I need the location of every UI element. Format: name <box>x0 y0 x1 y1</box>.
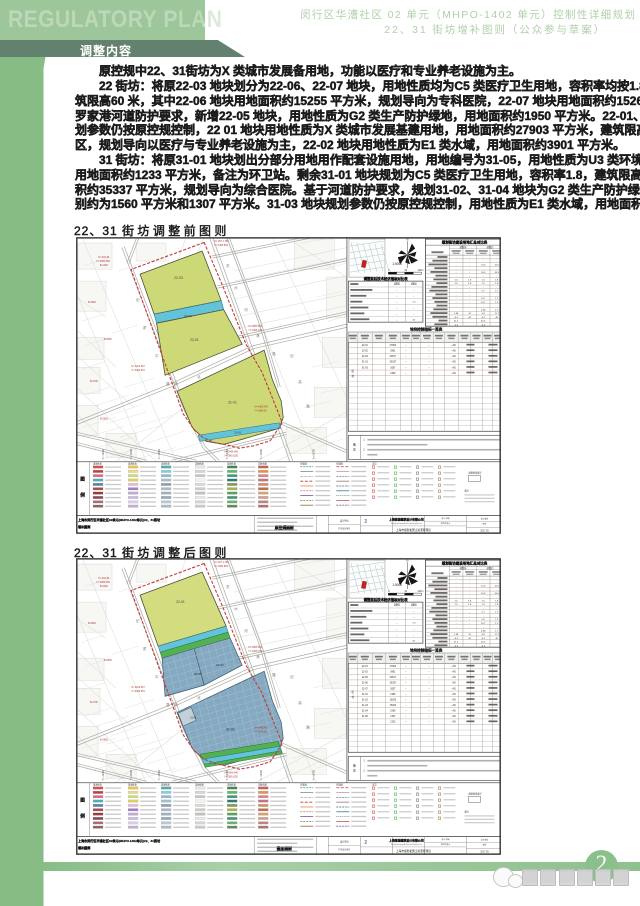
svg-text:X=-3463.584: X=-3463.584 <box>248 325 262 328</box>
svg-text:Y=-16000: Y=-16000 <box>312 769 315 780</box>
svg-text:--: -- <box>428 699 430 701</box>
svg-text:--: -- <box>405 367 407 369</box>
svg-text:--: -- <box>413 313 415 315</box>
svg-text:22-07: 22-07 <box>216 663 224 667</box>
svg-text:1233: 1233 <box>390 721 396 723</box>
svg-text:上海市规划和国土资源管理局: 上海市规划和国土资源管理局 <box>396 849 431 853</box>
svg-text:22-03: 22-03 <box>174 276 183 280</box>
svg-text:Y=-16000: Y=-16000 <box>102 769 105 780</box>
svg-text:22-02: 22-02 <box>362 350 369 352</box>
svg-text:--/60: --/60 <box>451 666 456 668</box>
svg-text:路: 路 <box>166 702 170 707</box>
svg-text:闵: 闵 <box>174 702 178 707</box>
svg-text:Y=-16000: Y=-16000 <box>312 448 315 459</box>
svg-text:--: -- <box>405 666 407 668</box>
svg-text:1307: 1307 <box>390 716 396 718</box>
svg-text:30517: 30517 <box>390 677 397 679</box>
svg-text:31-01: 31-01 <box>362 694 369 696</box>
svg-text:--: -- <box>396 307 398 309</box>
svg-text:上海规源建筑设计有限公司: 上海规源建筑设计有限公司 <box>389 516 424 521</box>
svg-text:--: -- <box>428 677 430 679</box>
svg-text:Y=-16000: Y=-16000 <box>158 448 161 459</box>
svg-text:22-03: 22-03 <box>362 356 369 358</box>
svg-text:35337: 35337 <box>390 361 397 363</box>
svg-text:--: -- <box>428 356 430 358</box>
svg-text:调整前后技术经济指标对比表: 调整前后技术经济指标对比表 <box>364 597 409 602</box>
svg-text:规划街坊建设用地汇总对比表: 规划街坊建设用地汇总对比表 <box>441 560 488 565</box>
svg-text:备: 备 <box>353 762 356 767</box>
svg-text:--/60: --/60 <box>451 372 456 374</box>
svg-text:中: 中 <box>155 674 159 679</box>
svg-text:1560: 1560 <box>390 710 396 712</box>
svg-text:X=-257.1.756: X=-257.1.756 <box>214 240 229 243</box>
svg-text:--: -- <box>405 671 407 673</box>
svg-text:--: -- <box>428 705 430 707</box>
svg-text:22-02: 22-02 <box>362 671 369 673</box>
svg-text:31-02: 31-02 <box>362 699 369 701</box>
svg-text:闵: 闵 <box>174 381 178 386</box>
svg-text:注: 注 <box>353 446 356 451</box>
svg-text:27903: 27903 <box>390 345 397 347</box>
svg-text:--: -- <box>428 345 430 347</box>
svg-text:--: -- <box>396 319 398 321</box>
svg-text:--: -- <box>405 710 407 712</box>
svg-text:--: -- <box>396 640 398 642</box>
svg-text:路: 路 <box>306 724 310 729</box>
svg-text:X=-204.35: X=-204.35 <box>98 577 110 580</box>
svg-text:--: -- <box>405 345 407 347</box>
svg-text:31-01: 31-01 <box>226 727 235 731</box>
svg-text:--: -- <box>405 688 407 690</box>
svg-text:--: -- <box>413 628 415 630</box>
svg-text:--: -- <box>413 307 415 309</box>
svg-text:Y=-16000: Y=-16000 <box>260 448 263 459</box>
svg-text:Y=-16000: Y=-16000 <box>226 448 229 459</box>
svg-text:Y=-3462.650: Y=-3462.650 <box>96 581 110 584</box>
svg-text:增补图则: 增补图则 <box>78 524 90 529</box>
svg-text:2.: 2. <box>363 769 365 772</box>
svg-text:2.: 2. <box>363 448 365 451</box>
svg-text:--: -- <box>396 290 398 292</box>
svg-text:2657: 2657 <box>390 688 396 690</box>
svg-text:上海市闵行区华漕社区02单元(MHPO-1402单元)22、: 上海市闵行区华漕社区02单元(MHPO-1402单元)22、31街坊 <box>78 838 161 843</box>
svg-text:--: -- <box>428 671 430 673</box>
svg-text:--: -- <box>413 617 415 619</box>
svg-text:上海市规划和国土资源管理局: 上海市规划和国土资源管理局 <box>396 528 431 532</box>
svg-text:--: -- <box>405 705 407 707</box>
svg-text:100m: 100m <box>417 590 423 593</box>
svg-text:Y=-16000: Y=-16000 <box>130 769 133 780</box>
svg-text:B-2500: B-2500 <box>88 301 96 304</box>
svg-text:中: 中 <box>155 353 159 358</box>
svg-text:Y=-3465.742: Y=-3465.742 <box>248 650 262 653</box>
svg-text:--/60: --/60 <box>451 721 456 723</box>
svg-text:27903: 27903 <box>390 666 397 668</box>
svg-text:X=-257.1.756: X=-257.1.756 <box>214 561 229 564</box>
svg-text:--/60: --/60 <box>451 345 456 347</box>
svg-text:--: -- <box>405 356 407 358</box>
svg-text:--: -- <box>428 716 430 718</box>
svg-text:B-2400: B-2400 <box>100 264 108 267</box>
svg-text:35337: 35337 <box>390 683 397 685</box>
svg-text:注: 注 <box>353 767 356 772</box>
svg-text:--: -- <box>405 361 407 363</box>
svg-text:--/60: --/60 <box>451 694 456 696</box>
svg-text:--/60: --/60 <box>451 699 456 701</box>
svg-text:地块控制指标一览表: 地块控制指标一览表 <box>410 647 443 652</box>
svg-text:--: -- <box>413 634 415 636</box>
svg-text:22-07: 22-07 <box>362 688 369 690</box>
svg-text:31-03: 31-03 <box>234 430 241 434</box>
svg-text:B-2600: B-2600 <box>104 659 112 662</box>
svg-text:B-2800: B-2800 <box>100 738 108 741</box>
svg-text:上海规源建筑设计有限公司: 上海规源建筑设计有限公司 <box>389 837 424 842</box>
svg-text:--/60: --/60 <box>451 677 456 679</box>
svg-text:--/60: --/60 <box>451 671 456 673</box>
svg-text:州: 州 <box>234 286 238 290</box>
svg-text:3901: 3901 <box>390 350 396 352</box>
svg-text:--: -- <box>413 295 415 297</box>
svg-text:--: -- <box>428 350 430 352</box>
svg-text:苏: 苏 <box>226 263 230 268</box>
svg-text:--: -- <box>413 611 415 613</box>
svg-text:31-03: 31-03 <box>362 367 369 369</box>
svg-text:--/60: --/60 <box>451 361 456 363</box>
svg-text:--: -- <box>396 623 398 625</box>
svg-text:X=-3242.667: X=-3242.667 <box>131 686 145 689</box>
svg-text:--/60: --/60 <box>451 705 456 707</box>
svg-text:X=-3465.401: X=-3465.401 <box>254 726 268 729</box>
svg-text:B-2700: B-2700 <box>90 380 98 383</box>
svg-text:31-05: 31-05 <box>190 716 197 719</box>
svg-text:备: 备 <box>353 441 356 446</box>
svg-text:--: -- <box>396 295 398 297</box>
svg-text:Y=-16000: Y=-16000 <box>130 448 133 459</box>
svg-text:--: -- <box>405 677 407 679</box>
svg-text:--: -- <box>396 611 398 613</box>
svg-text:31-01: 31-01 <box>228 400 237 404</box>
svg-text:坊: 坊 <box>352 374 355 378</box>
svg-text:州: 州 <box>234 607 238 611</box>
svg-text:--: -- <box>405 694 407 696</box>
svg-text:22-05: 22-05 <box>362 677 369 679</box>
svg-text:B-2600: B-2600 <box>104 338 112 341</box>
svg-text:1:5000: 1:5000 <box>392 583 402 587</box>
svg-text:Y=-3463.809: Y=-3463.809 <box>214 565 228 568</box>
svg-text:Y=-16000: Y=-16000 <box>102 448 105 459</box>
svg-text:22-01: 22-01 <box>362 345 369 347</box>
svg-text:B-2700: B-2700 <box>90 701 98 704</box>
svg-text:--: -- <box>405 716 407 718</box>
svg-text:路: 路 <box>272 672 276 677</box>
svg-text:Y=-3465.742: Y=-3465.742 <box>248 329 262 332</box>
svg-text:--/60: --/60 <box>451 683 456 685</box>
svg-text:1.: 1. <box>363 759 365 762</box>
svg-text:--: -- <box>396 313 398 315</box>
svg-text:Y=-3462.872: Y=-3462.872 <box>131 369 145 372</box>
svg-text:翟: 翟 <box>143 326 147 330</box>
svg-text:22-02: 22-02 <box>184 314 192 318</box>
svg-text:1.: 1. <box>363 438 365 441</box>
svg-text:北: 北 <box>197 374 201 379</box>
svg-text:--: -- <box>396 634 398 636</box>
svg-text:Y=-3462.872: Y=-3462.872 <box>131 690 145 693</box>
svg-text:X=-3465.401: X=-3465.401 <box>254 405 268 408</box>
svg-text:图: 图 <box>80 796 85 803</box>
svg-text:30517: 30517 <box>390 356 397 358</box>
svg-text:--/60: --/60 <box>451 367 456 369</box>
svg-text:街: 街 <box>352 369 355 373</box>
svg-text:B-2500: B-2500 <box>88 622 96 625</box>
svg-text:调整前后技术经济指标对比表: 调整前后技术经济指标对比表 <box>364 276 409 281</box>
svg-text:翟: 翟 <box>143 647 147 651</box>
svg-text:--: -- <box>405 699 407 701</box>
svg-text:--: -- <box>428 694 430 696</box>
svg-text:2657: 2657 <box>390 367 396 369</box>
svg-text:--: -- <box>428 710 430 712</box>
svg-text:22-01: 22-01 <box>176 600 185 604</box>
svg-text:100m: 100m <box>417 269 423 272</box>
svg-text:苏: 苏 <box>226 584 230 589</box>
svg-text:街: 街 <box>352 690 355 694</box>
svg-text:--/60: --/60 <box>451 356 456 358</box>
svg-text:22-01: 22-01 <box>362 666 369 668</box>
svg-text:X=-3242.667: X=-3242.667 <box>131 365 145 368</box>
svg-text:--/60: --/60 <box>451 688 456 690</box>
svg-text:Y=-3463.809: Y=-3463.809 <box>214 244 228 247</box>
svg-text:3901: 3901 <box>390 671 396 673</box>
svg-text:22-01: 22-01 <box>190 338 199 342</box>
svg-text:B-2400: B-2400 <box>100 585 108 588</box>
svg-text:15255: 15255 <box>390 699 397 701</box>
svg-text:路: 路 <box>166 381 170 386</box>
svg-text:1950: 1950 <box>390 372 396 374</box>
svg-text:上海市闵行区华漕社区02单元(MHPO-1402单元)22、: 上海市闵行区华漕社区02单元(MHPO-1402单元)22、31街坊 <box>78 517 161 522</box>
svg-text:图: 图 <box>80 475 85 482</box>
svg-text:--: -- <box>405 683 407 685</box>
svg-text:31-05: 31-05 <box>362 716 369 718</box>
svg-text:--: -- <box>428 683 430 685</box>
svg-text:例: 例 <box>80 491 85 498</box>
svg-text:1950: 1950 <box>390 694 396 696</box>
svg-text:--/60: --/60 <box>451 710 456 712</box>
svg-text:北: 北 <box>197 695 201 700</box>
svg-text:规划街坊建设用地汇总对比表: 规划街坊建设用地汇总对比表 <box>441 239 488 244</box>
svg-text:--: -- <box>396 301 398 303</box>
svg-text:2017.05: 2017.05 <box>480 530 489 532</box>
svg-text:31-01: 31-01 <box>362 361 369 363</box>
svg-text:--: -- <box>413 290 415 292</box>
svg-text:--: -- <box>405 721 407 723</box>
svg-text:--: -- <box>396 628 398 630</box>
svg-text:--: -- <box>405 350 407 352</box>
svg-text:例: 例 <box>80 812 85 819</box>
svg-text:31-03: 31-03 <box>362 705 369 707</box>
svg-text:纪: 纪 <box>290 353 294 358</box>
svg-text:--: -- <box>405 372 407 374</box>
svg-text:Y=-16000: Y=-16000 <box>158 769 161 780</box>
svg-text:--/60: --/60 <box>451 716 456 718</box>
svg-text:Y=-3366.62: Y=-3366.62 <box>254 409 267 412</box>
svg-text:X=-204.35: X=-204.35 <box>98 256 110 259</box>
svg-text:--: -- <box>428 361 430 363</box>
svg-text:--: -- <box>396 617 398 619</box>
svg-text:路: 路 <box>272 351 276 356</box>
svg-text:2017.05: 2017.05 <box>480 851 489 853</box>
svg-text:1:5000: 1:5000 <box>392 262 402 266</box>
svg-text:31-04: 31-04 <box>362 710 369 712</box>
svg-text:坊: 坊 <box>352 695 355 699</box>
svg-text:--: -- <box>428 688 430 690</box>
svg-text:15262: 15262 <box>390 705 397 707</box>
svg-text:Y=-16000: Y=-16000 <box>260 769 263 780</box>
svg-text:X=-3463.584: X=-3463.584 <box>248 646 262 649</box>
svg-text:--: -- <box>428 367 430 369</box>
svg-text:B-2800: B-2800 <box>100 417 108 420</box>
svg-text:22-06: 22-06 <box>194 672 202 676</box>
svg-text:--/60: --/60 <box>451 350 456 352</box>
svg-text:路: 路 <box>306 403 310 408</box>
svg-text:Y=-3366.62: Y=-3366.62 <box>254 730 267 733</box>
svg-text:Y=-3462.650: Y=-3462.650 <box>96 260 110 263</box>
svg-text:--: -- <box>428 666 430 668</box>
svg-text:--: -- <box>428 372 430 374</box>
svg-text:地块控制指标一览表: 地块控制指标一览表 <box>410 326 443 331</box>
svg-text:Y=-16000: Y=-16000 <box>226 769 229 780</box>
svg-text:--: -- <box>428 721 430 723</box>
svg-text:增补图则: 增补图则 <box>78 845 90 850</box>
svg-text:22-06: 22-06 <box>362 683 369 685</box>
svg-text:纪: 纪 <box>290 674 294 679</box>
